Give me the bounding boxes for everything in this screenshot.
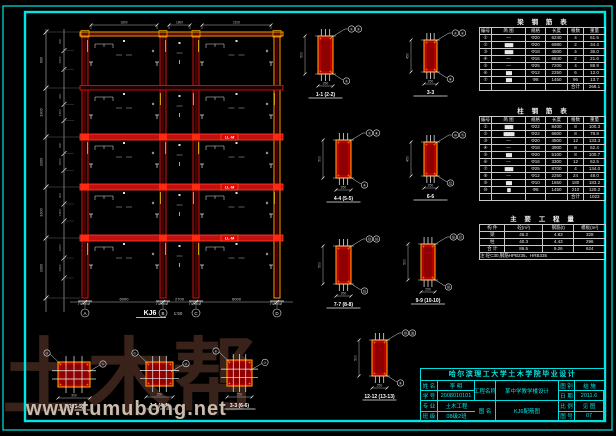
svg-text:250: 250 [237, 393, 243, 397]
col-header: 编号 [480, 28, 492, 35]
table-cell: 4.43 [542, 239, 574, 246]
svg-text:②: ② [357, 27, 361, 31]
svg-text:⑫: ⑫ [449, 180, 453, 185]
tb-label: 班 级 [421, 412, 438, 422]
table-cell: 40.3 [505, 239, 543, 246]
svg-text:⑤: ⑤ [101, 362, 105, 366]
svg-text:③: ③ [345, 79, 349, 83]
svg-text:⑰: ⑰ [459, 234, 463, 239]
rebar-shape-cell: ▆▆ [492, 70, 526, 77]
rebar-shape-cell: ▆▆▆▆ [492, 131, 526, 138]
quantities-table-panel: 主 要 工 程 量 构 件砼(m³)钢筋(t)模板(m²)梁46.24.8332… [479, 213, 608, 260]
table-header-row: 编号简 图规格长度根数重量 [480, 28, 606, 35]
table-cell: Φ25 [526, 166, 546, 173]
table-cell: 24 [568, 173, 584, 180]
table-cell: 6240 [546, 35, 568, 42]
table-row: ③—Φ20450012133.3 [480, 138, 606, 145]
table-cell: 1650 [546, 180, 568, 187]
svg-text:250: 250 [323, 82, 329, 86]
table-row: ②▆▆▆▆Φ226600878.8 [480, 131, 606, 138]
table-note: 注:砼C30,钢筋HPB235、HRB335 [480, 253, 606, 260]
table-cell: 100.3 [584, 124, 606, 131]
rebar-shape-cell: ▆▆ [492, 77, 526, 84]
table-cell: 62.4 [584, 145, 606, 152]
table-cell: 96 [568, 77, 584, 84]
svg-text:9-9 (10-10): 9-9 (10-10) [416, 298, 441, 304]
table-cell: 86.5 [505, 246, 543, 253]
col-header: 钢筋(t) [542, 225, 574, 232]
col-header: 长度 [546, 28, 568, 35]
svg-text:1500: 1500 [58, 209, 62, 216]
column-rebar-table-panel: 柱 钢 筋 表 编号简 图规格长度根数重量①▆▆▆Φ2284008100.3②▆… [479, 105, 608, 201]
tb-value: 见 图 [575, 401, 604, 411]
table-row: ④—Φ183900862.4 [480, 145, 606, 152]
table-cell: 2 [568, 42, 584, 49]
tb-label: 姓 名 [421, 381, 438, 391]
table-cell: 88.9 [584, 63, 606, 70]
table-cell: ⑥ [480, 70, 492, 77]
table-cell: ⑥ [480, 159, 492, 166]
table-cell: 61.5 [584, 35, 606, 42]
table-cell: 合计 [568, 84, 584, 91]
table-cell: 1450 [546, 77, 568, 84]
svg-text:500: 500 [354, 355, 358, 361]
svg-text:500: 500 [318, 262, 322, 268]
table-row: ⑧—Φ1222502448.0 [480, 173, 606, 180]
col-header: 规格 [526, 28, 546, 35]
table-row: ⑥▆▆Φ122250612.0 [480, 70, 606, 77]
watermark-url: www.tumubong.net [26, 398, 227, 421]
svg-text:6000: 6000 [120, 297, 130, 302]
table-row: 合 计86.59.26624 [480, 246, 606, 253]
table-cell: 12.0 [584, 70, 606, 77]
table-cell: 7200 [546, 63, 568, 70]
table-cell: Φ18 [526, 49, 546, 56]
table-cell: 13.7 [584, 77, 606, 84]
table-cell: Φ16 [526, 159, 546, 166]
svg-text:⑥: ⑥ [214, 349, 218, 353]
table-cell: Φ20 [526, 35, 546, 42]
table-cell: ① [480, 124, 492, 131]
table-row: 梁46.24.83328 [480, 232, 606, 239]
table-row: ⑤—Φ257200488.9 [480, 63, 606, 70]
beam-rebar-table: 编号简 图规格长度根数重量①—Φ206240461.5②▆▆▆Φ20698023… [479, 27, 606, 91]
table-cell: Φ18 [526, 145, 546, 152]
rebar-shape-cell: ▆▆▆ [492, 42, 526, 49]
table-cell [546, 84, 568, 91]
svg-text:⑩: ⑩ [454, 133, 458, 137]
beam-rebar-table-title: 梁 钢 筋 表 [479, 16, 608, 26]
col-header: 长度 [546, 117, 568, 124]
table-cell: ③ [480, 49, 492, 56]
table-cell: 4500 [546, 138, 568, 145]
table-cell: 8 [568, 145, 584, 152]
svg-text:⑬: ⑬ [368, 236, 372, 241]
table-cell: 6840 [546, 56, 568, 63]
tb-label: 学 号 [421, 391, 438, 401]
svg-text:500: 500 [403, 259, 407, 265]
svg-text:6000: 6000 [232, 297, 242, 302]
table-cell: 12 [568, 159, 584, 166]
tb-value: 2011.6 [575, 391, 604, 401]
table-cell: 120.2 [584, 187, 606, 194]
quantities-table-title: 主 要 工 程 量 [479, 213, 608, 223]
table-cell: 9.26 [542, 246, 574, 253]
svg-text:1800: 1800 [120, 21, 127, 25]
svg-text:7-7 (8-8): 7-7 (8-8) [334, 302, 354, 308]
table-cell: 183.2 [584, 180, 606, 187]
svg-text:500: 500 [300, 52, 304, 58]
tb-label: 图 名 [475, 401, 496, 421]
table-cell: ② [480, 131, 492, 138]
table-row: ⑥—Φ1633001262.5 [480, 159, 606, 166]
svg-text:⑱: ⑱ [447, 284, 451, 289]
col-header: 重量 [584, 117, 606, 124]
table-cell: 梁 [480, 232, 505, 239]
col-header: 编号 [480, 117, 492, 124]
svg-text:⑦: ⑦ [263, 361, 267, 365]
svg-text:D: D [275, 311, 279, 316]
rebar-shape-cell: ▆▆▆ [492, 124, 526, 131]
svg-text:④: ④ [454, 31, 458, 35]
table-cell: 4.83 [542, 232, 574, 239]
table-cell: 180 [568, 180, 584, 187]
table-cell: ③ [480, 138, 492, 145]
table-cell: ⑨ [480, 180, 492, 187]
column-rebar-table-title: 柱 钢 筋 表 [479, 105, 608, 115]
svg-text:600: 600 [40, 57, 44, 63]
svg-text:⑤: ⑤ [461, 31, 465, 35]
table-cell: 296 [574, 239, 606, 246]
table-cell: 12 [568, 138, 584, 145]
svg-text:2700: 2700 [175, 297, 185, 302]
table-cell: ① [480, 35, 492, 42]
svg-text:1800: 1800 [176, 21, 183, 25]
svg-text:⑯: ⑯ [452, 234, 456, 239]
col-header: 根数 [568, 117, 584, 124]
table-cell: 36.0 [584, 49, 606, 56]
table-cell: — [492, 173, 526, 180]
svg-text:②: ② [184, 362, 188, 366]
table-cell [526, 194, 546, 201]
rebar-shape-cell: ▆▆▆ [492, 166, 526, 173]
svg-text:2100: 2100 [233, 21, 240, 25]
svg-text:1-1 (2-2): 1-1 (2-2) [316, 92, 336, 98]
svg-text:⑦: ⑦ [368, 131, 372, 135]
col-header: 模板(m²) [574, 225, 606, 232]
table-cell: ⑤ [480, 63, 492, 70]
tb-value: 土木工程 [438, 401, 475, 411]
svg-text:⑳: ⑳ [411, 330, 415, 335]
table-cell: 624 [574, 246, 606, 253]
table-cell: ② [480, 42, 492, 49]
table-cell: — [492, 145, 526, 152]
table-cell: — [492, 35, 526, 42]
col-header: 简 图 [492, 117, 526, 124]
table-cell [492, 84, 526, 91]
table-cell: 78.8 [584, 131, 606, 138]
col-header: 构 件 [480, 225, 505, 232]
rebar-shape-cell: ▆▆ [492, 152, 526, 159]
svg-text:3-3 (6-6): 3-3 (6-6) [230, 403, 250, 409]
tb-label: 图 别 [559, 381, 575, 391]
table-note-row: 注:砼C30,钢筋HPB235、HRB335 [480, 253, 606, 260]
table-cell: 3300 [546, 159, 568, 166]
table-row: 合计1023 [480, 194, 606, 201]
svg-text:⑪: ⑪ [461, 132, 465, 137]
svg-text:⑨: ⑨ [363, 183, 367, 187]
table-cell: ⑧ [480, 173, 492, 180]
tb-label: 比 例 [559, 401, 575, 411]
svg-text:3300: 3300 [40, 208, 44, 216]
svg-text:4200: 4200 [38, 0, 46, 1]
table-cell: 62.5 [584, 159, 606, 166]
table-cell: 133.3 [584, 138, 606, 145]
svg-text:1:50: 1:50 [174, 311, 183, 316]
svg-text:⑭: ⑭ [375, 236, 379, 241]
title-block: 哈尔滨理工大学土木学院毕业设计 姓 名 李 明 工程名称 某中学教学楼设计 图 … [420, 368, 605, 421]
table-cell: 合计 [568, 194, 584, 201]
tb-label: 工程名称 [475, 381, 496, 401]
table-cell: 8 [568, 131, 584, 138]
svg-text:3-3: 3-3 [427, 90, 434, 96]
table-cell: 1450 [546, 187, 568, 194]
tb-value: 2008010101 [438, 391, 475, 401]
table-row: ⑩▆Φ81450210120.2 [480, 187, 606, 194]
svg-text:B: B [161, 311, 164, 316]
svg-text:C: C [194, 311, 198, 316]
column-section-detail: 500250⑦⑧⑨4-4 (5-5) [318, 130, 380, 202]
tb-value: KJ6配筋图 [496, 401, 559, 421]
table-cell [492, 194, 526, 201]
table-row: 柱40.34.43296 [480, 239, 606, 246]
beam-tags: LL-MLL-MLL-M [221, 134, 238, 241]
table-cell: Φ20 [526, 152, 546, 159]
table-row: ⑨▆▆Φ101650180183.2 [480, 180, 606, 187]
svg-text:②: ② [399, 381, 403, 385]
table-cell: 4 [568, 35, 584, 42]
table-header-row: 构 件砼(m³)钢筋(t)模板(m²) [480, 225, 606, 232]
svg-text:6-6: 6-6 [427, 194, 434, 200]
table-cell: 46.2 [505, 232, 543, 239]
column-section-detail: 450250④⑤⑥3-3 [406, 30, 466, 96]
table-row: ⑦▆▆▆Φ2587004134.0 [480, 166, 606, 173]
tb-value: 李 明 [438, 381, 475, 391]
svg-text:250: 250 [428, 80, 434, 84]
svg-text:LL-M: LL-M [225, 236, 235, 241]
svg-text:⑧: ⑧ [375, 131, 379, 135]
svg-text:450: 450 [406, 156, 410, 162]
table-cell: Φ8 [526, 77, 546, 84]
rebar-shape-cell: ▆ [492, 187, 526, 194]
svg-text:⑲: ⑲ [404, 330, 408, 335]
svg-text:500: 500 [318, 156, 322, 162]
column-section-detail: 500250⑲⑳②12-12 (13-13) [354, 330, 416, 400]
svg-text:900: 900 [58, 193, 62, 198]
table-cell: 5100 [546, 152, 568, 159]
svg-text:4-4 (5-5): 4-4 (5-5) [334, 196, 354, 202]
column-rebar-table: 编号简 图规格长度根数重量①▆▆▆Φ2284008100.3②▆▆▆▆Φ2266… [479, 116, 606, 201]
beam-rebar-table-panel: 梁 钢 筋 表 编号简 图规格长度根数重量①—Φ206240461.5②▆▆▆Φ… [479, 16, 608, 91]
svg-text:12-12 (13-13): 12-12 (13-13) [364, 394, 395, 400]
table-cell: 210 [568, 187, 584, 194]
table-row: ⑦▆▆Φ814509613.7 [480, 77, 606, 84]
svg-text:①: ① [350, 27, 354, 31]
table-cell: 1023 [584, 194, 606, 201]
table-row: ⑤▆▆Φ2051008100.7 [480, 152, 606, 159]
table-row: ②▆▆▆Φ206980234.4 [480, 42, 606, 49]
table-cell: 4 [568, 166, 584, 173]
table-cell: ④ [480, 56, 492, 63]
title-block-grid: 姓 名 李 明 工程名称 某中学教学楼设计 图 别 结 施 学 号 200801… [421, 381, 604, 422]
table-header-row: 编号简 图规格长度根数重量 [480, 117, 606, 124]
table-cell: 100.7 [584, 152, 606, 159]
tb-value: 07 [575, 412, 604, 422]
table-cell: 合 计 [480, 246, 505, 253]
svg-text:250: 250 [157, 393, 163, 397]
svg-text:1500: 1500 [58, 109, 62, 116]
table-cell: — [492, 138, 526, 145]
table-cell: — [492, 63, 526, 70]
svg-text:⑥: ⑥ [449, 77, 453, 81]
table-cell: Φ10 [526, 180, 546, 187]
table-cell [546, 194, 568, 201]
tb-value: 某中学教学楼设计 [496, 381, 559, 401]
table-cell: 6600 [546, 131, 568, 138]
table-cell: Φ16 [526, 56, 546, 63]
quantities-table: 构 件砼(m³)钢筋(t)模板(m²)梁46.24.83328柱40.34.43… [479, 224, 606, 260]
table-cell: 48.0 [584, 173, 606, 180]
table-cell: 3900 [546, 145, 568, 152]
tb-value: 08级2班 [438, 412, 475, 422]
svg-text:450: 450 [406, 53, 410, 59]
table-cell: 4 [568, 63, 584, 70]
table-cell: — [492, 159, 526, 166]
table-cell: 328 [574, 232, 606, 239]
table-cell: 6980 [546, 42, 568, 49]
svg-text:④: ④ [45, 351, 49, 355]
table-cell: ⑦ [480, 77, 492, 84]
svg-text:LL-M: LL-M [225, 185, 235, 190]
svg-text:250: 250 [425, 288, 431, 292]
table-cell: Φ8 [526, 187, 546, 194]
svg-text:300: 300 [71, 394, 77, 398]
svg-text:1200: 1200 [58, 244, 62, 251]
table-cell: Φ12 [526, 70, 546, 77]
table-cell: 8700 [546, 166, 568, 173]
table-cell: 柱 [480, 239, 505, 246]
rebar-shape-cell: ▆▆ [492, 180, 526, 187]
tb-label: 专 业 [421, 401, 438, 411]
table-cell: 6 [568, 70, 584, 77]
table-row: 合计268.1 [480, 84, 606, 91]
svg-text:900: 900 [58, 93, 62, 98]
svg-text:3300: 3300 [40, 158, 44, 166]
svg-text:1500: 1500 [58, 158, 62, 165]
table-cell: ⑩ [480, 187, 492, 194]
svg-text:900: 900 [58, 38, 62, 43]
table-cell: — [492, 56, 526, 63]
table-cell: 8 [568, 124, 584, 131]
table-cell: 2250 [546, 173, 568, 180]
col-header: 简 图 [492, 28, 526, 35]
svg-text:1800: 1800 [58, 264, 62, 271]
svg-text:250: 250 [377, 384, 383, 388]
table-cell [480, 194, 492, 201]
table-cell [526, 84, 546, 91]
table-cell: 4500 [546, 49, 568, 56]
table-cell: Φ25 [526, 63, 546, 70]
table-cell: 2 [568, 56, 584, 63]
svg-text:250: 250 [341, 186, 347, 190]
rebar-shape-cell: ▆▆▆ [492, 49, 526, 56]
table-cell: 8 [568, 152, 584, 159]
table-cell: 34.4 [584, 42, 606, 49]
table-cell [480, 84, 492, 91]
column-section-detail: 450250⑩⑪⑫6-6 [406, 132, 466, 200]
table-cell: Φ20 [526, 42, 546, 49]
table-row: ③▆▆▆Φ184500436.0 [480, 49, 606, 56]
table-cell: 8400 [546, 124, 568, 131]
table-cell: 134.0 [584, 166, 606, 173]
svg-text:1500: 1500 [58, 56, 62, 63]
table-cell: 21.6 [584, 56, 606, 63]
column-section-detail: 500250⑬⑭⑮7-7 (8-8) [318, 236, 380, 308]
svg-text:3300: 3300 [40, 264, 44, 272]
table-cell: ⑦ [480, 166, 492, 173]
frame-elevation [80, 31, 283, 299]
tb-label: 日 期 [559, 391, 575, 401]
svg-text:⑮: ⑮ [363, 288, 367, 293]
left-dimension-chain: 6003300330033003300420090015009001500900… [38, 0, 80, 312]
table-cell: Φ20 [526, 138, 546, 145]
table-cell: ⑤ [480, 152, 492, 159]
roof-dimensions: 180018002100 [90, 21, 273, 29]
svg-text:3300: 3300 [40, 108, 44, 116]
table-row: ①▆▆▆Φ2284008100.3 [480, 124, 606, 131]
col-header: 砼(m³) [505, 225, 543, 232]
sheet-title: 哈尔滨理工大学土木学院毕业设计 [421, 369, 604, 381]
svg-text:250: 250 [341, 292, 347, 296]
table-cell: ④ [480, 145, 492, 152]
svg-text:A: A [83, 311, 86, 316]
table-row: ④—Φ166840221.6 [480, 56, 606, 63]
tb-label: 图 号 [559, 412, 575, 422]
col-header: 根数 [568, 28, 584, 35]
table-cell: Φ12 [526, 173, 546, 180]
svg-text:①: ① [133, 351, 137, 355]
svg-text:900: 900 [58, 142, 62, 147]
col-header: 重量 [584, 28, 606, 35]
table-cell: 2250 [546, 70, 568, 77]
col-header: 规格 [526, 117, 546, 124]
tb-value: 结 施 [575, 381, 604, 391]
svg-text:250: 250 [428, 184, 434, 188]
table-cell: 268.1 [584, 84, 606, 91]
table-cell: Φ22 [526, 131, 546, 138]
column-section-detail: 500250①②③1-1 (2-2) [300, 26, 362, 98]
svg-text:KJ6: KJ6 [144, 310, 157, 317]
table-cell: Φ22 [526, 124, 546, 131]
svg-text:LL-M: LL-M [225, 135, 235, 140]
table-row: ①—Φ206240461.5 [480, 35, 606, 42]
table-cell: 4 [568, 49, 584, 56]
column-section-detail: 500250⑯⑰⑱9-9 (10-10) [403, 234, 464, 304]
